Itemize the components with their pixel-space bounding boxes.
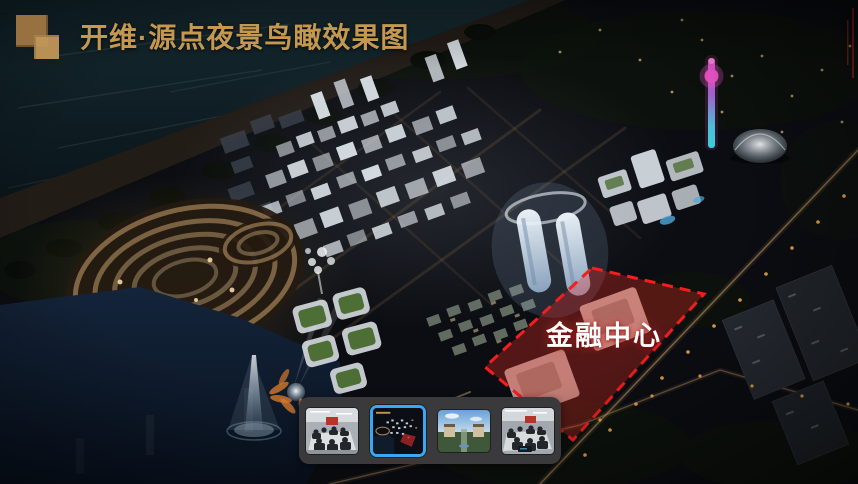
meeting-room-thumb-image: [306, 408, 358, 454]
thumbnail-meeting-room-photo-2[interactable]: [502, 408, 554, 454]
title-bar: 开维·源点夜景鸟瞰效果图: [16, 11, 409, 61]
night-aerial-render-view: 开维·源点夜景鸟瞰效果图 金融中心: [0, 0, 858, 484]
thumbnail-night-aerial-render-current[interactable]: [370, 405, 426, 457]
financial-center-label: 金融中心: [546, 314, 662, 353]
thumbnail-daytime-resort-aerial[interactable]: [438, 410, 490, 452]
overlapping-squares-logo-icon: [16, 11, 64, 61]
meeting-room-thumb-image-2: [502, 408, 554, 454]
daytime-resort-thumb-image: [438, 410, 490, 452]
logo-square-small: [34, 35, 59, 59]
page-title: 开维·源点夜景鸟瞰效果图: [80, 16, 409, 56]
thumbnail-meeting-room-photo-1[interactable]: [306, 408, 358, 454]
night-aerial-thumb-image: [373, 408, 423, 454]
thumbnail-strip: [299, 397, 561, 464]
